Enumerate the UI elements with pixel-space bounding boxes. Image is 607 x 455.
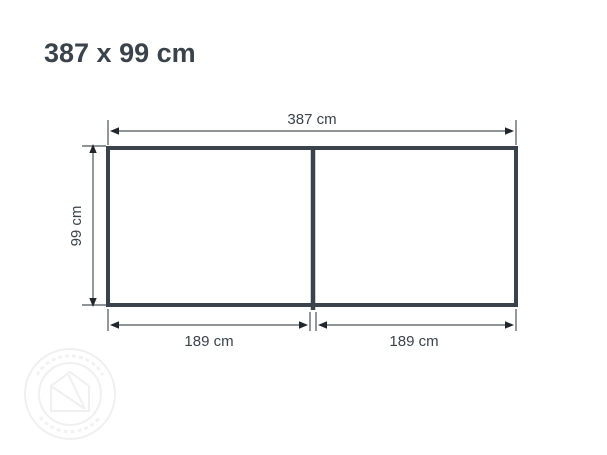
section-right-width-label: 189 cm <box>389 333 438 350</box>
dimension-drawing-canvas: 387 x 99 cm 387 cm 9 <box>0 0 607 455</box>
section-left-width-label: 189 cm <box>184 333 233 350</box>
arrowhead-down-icon <box>89 298 96 307</box>
dimension-drawing: 387 cm 99 cm 189 cm 189 cm <box>0 0 607 455</box>
dimension-section-right-width: 189 cm <box>316 309 516 350</box>
arrowhead-left-icon <box>318 321 327 328</box>
overall-width-label: 387 cm <box>287 111 336 128</box>
dimension-overall-width: 387 cm <box>108 111 516 145</box>
watermark-emblem <box>51 372 89 411</box>
arrowhead-right-icon <box>505 321 514 328</box>
arrowhead-up-icon <box>89 144 96 153</box>
watermark-logo <box>25 349 115 439</box>
dimension-section-left-width: 189 cm <box>108 309 310 350</box>
arrowhead-left-icon <box>110 127 119 134</box>
arrowhead-left-icon <box>110 321 119 328</box>
overall-height-label: 99 cm <box>68 206 85 247</box>
dimension-overall-height: 99 cm <box>68 144 106 307</box>
arrowhead-right-icon <box>505 127 514 134</box>
arrowhead-right-icon <box>299 321 308 328</box>
